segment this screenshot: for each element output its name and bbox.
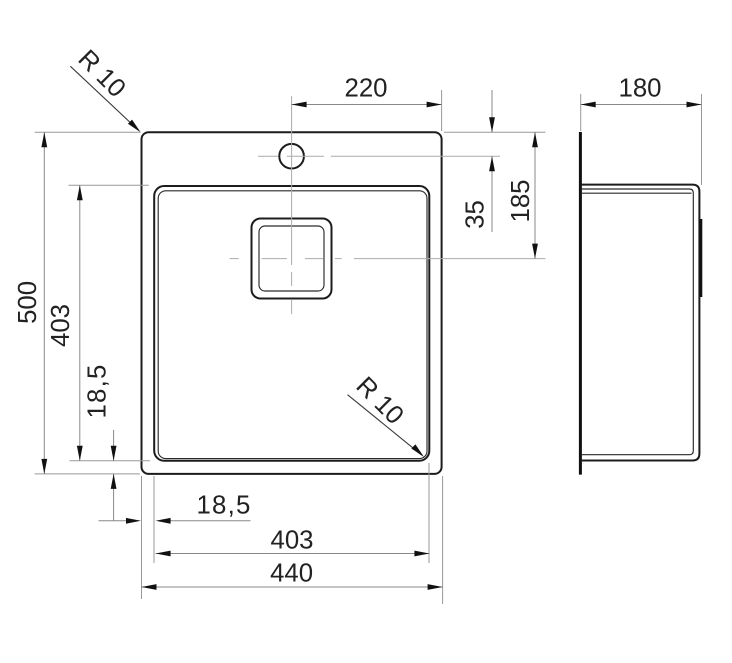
svg-text:220: 220 xyxy=(344,74,387,102)
svg-text:18,5: 18,5 xyxy=(84,363,112,418)
svg-text:18,5: 18,5 xyxy=(196,491,251,519)
svg-text:440: 440 xyxy=(270,560,313,588)
svg-text:403: 403 xyxy=(270,527,313,555)
svg-text:500: 500 xyxy=(14,281,42,324)
svg-text:185: 185 xyxy=(507,179,535,222)
svg-text:403: 403 xyxy=(47,304,75,347)
svg-text:180: 180 xyxy=(618,74,661,102)
svg-text:35: 35 xyxy=(462,200,490,229)
